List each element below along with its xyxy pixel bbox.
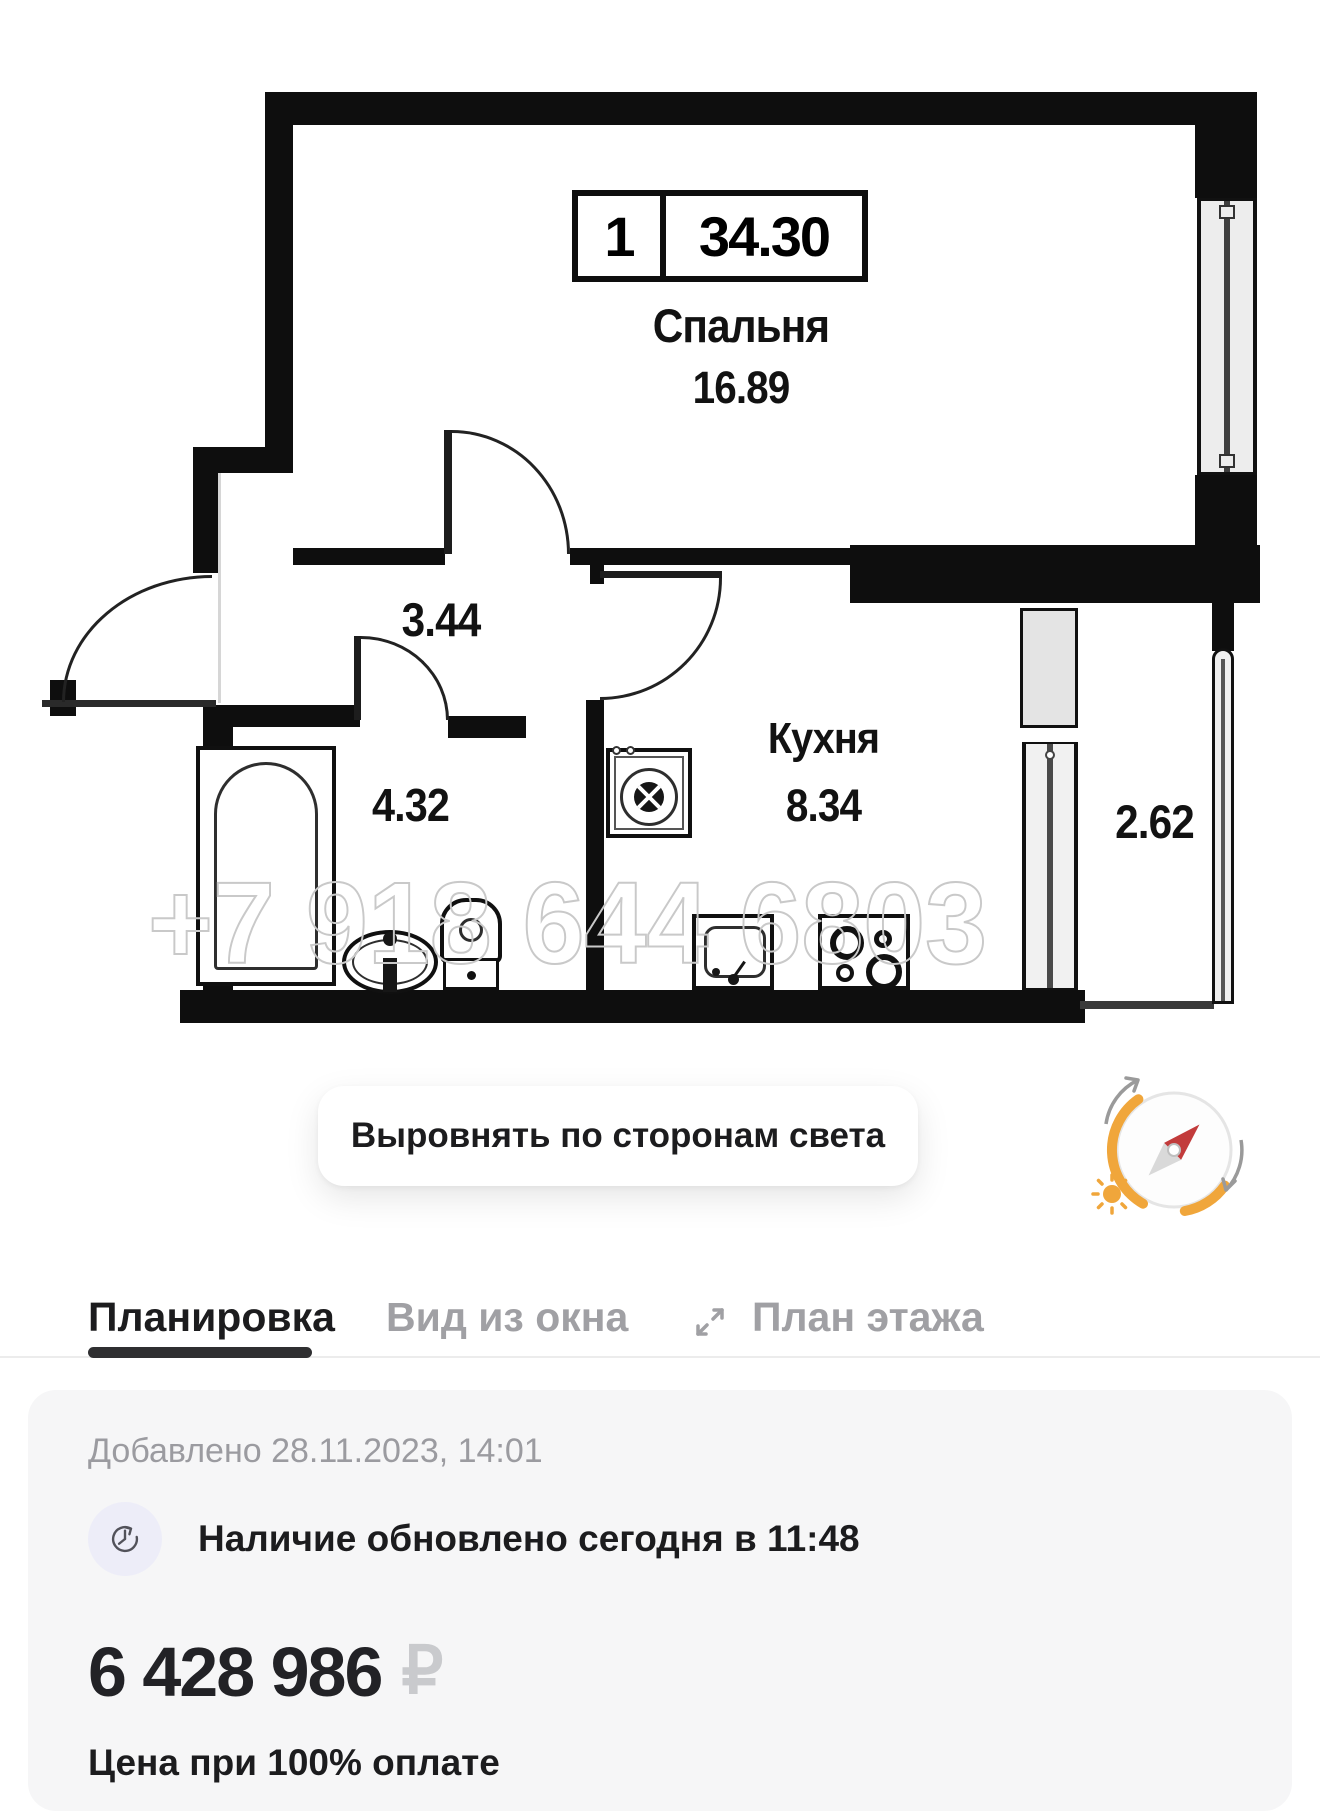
door-arc	[600, 578, 722, 700]
wall	[180, 990, 1085, 1023]
expand-icon[interactable]	[688, 1300, 732, 1344]
wall	[193, 473, 219, 573]
availability-text: Наличие обновлено сегодня в 11:48	[198, 1518, 860, 1560]
wall	[193, 447, 293, 473]
balcony-edge-line	[1080, 1001, 1214, 1009]
wall	[293, 548, 445, 565]
wall	[1212, 603, 1234, 651]
tab-plan-etazha[interactable]: План этажа	[752, 1294, 984, 1341]
wall	[1195, 125, 1257, 198]
room-label-bedroom: Спальня	[606, 298, 876, 353]
price-value: 6 428 986	[88, 1632, 381, 1712]
room-label-kitchen: Кухня	[745, 714, 903, 764]
wall	[1195, 475, 1257, 545]
price-note: Цена при 100% оплате	[88, 1742, 500, 1784]
tab-planirovka[interactable]: Планировка	[88, 1294, 335, 1341]
phone-watermark: +7 918 644 6803	[148, 856, 987, 990]
listing-page: 1 34.30 Спальня 16.89 3.44 Кухня 8.34 4.…	[0, 0, 1320, 1811]
availability-clock-icon	[88, 1502, 162, 1576]
tab-vid-iz-okna[interactable]: Вид из окна	[386, 1294, 628, 1341]
washing-machine-symbol	[606, 748, 692, 838]
door-arc	[62, 575, 212, 702]
sun-icon	[1093, 1175, 1131, 1213]
unit-rooms-count: 1	[578, 196, 666, 276]
availability-row: Наличие обновлено сегодня в 11:48	[88, 1502, 860, 1576]
added-date-text: Добавлено 28.11.2023, 14:01	[88, 1432, 543, 1471]
wall	[570, 548, 850, 565]
room-area-bathroom: 4.32	[336, 778, 485, 832]
window-bedroom	[1197, 198, 1257, 475]
align-cardinal-button[interactable]: Выровнять по сторонам света	[318, 1086, 918, 1186]
room-area-hallway: 3.44	[365, 592, 518, 647]
room-area-bedroom: 16.89	[606, 362, 876, 414]
wall	[850, 545, 1260, 603]
listing-info-card: Добавлено 28.11.2023, 14:01 Наличие обно…	[28, 1390, 1292, 1811]
unit-info-box: 1 34.30	[572, 190, 868, 282]
window-kitchen-balcony	[1022, 742, 1078, 990]
door-bedroom	[444, 430, 452, 554]
price-row: 6 428 986 ₽	[88, 1632, 443, 1712]
balcony-door	[1020, 608, 1078, 728]
wall	[265, 125, 293, 447]
ruble-symbol: ₽	[401, 1632, 443, 1709]
floor-plan-canvas[interactable]: 1 34.30 Спальня 16.89 3.44 Кухня 8.34 4.…	[0, 0, 1320, 1060]
room-area-kitchen: 8.34	[745, 780, 903, 832]
door-kitchen	[600, 571, 722, 578]
door-arc	[361, 636, 449, 720]
compass-icon[interactable]	[1088, 1062, 1260, 1234]
unit-total-area: 34.30	[666, 196, 862, 276]
wall	[448, 716, 526, 738]
niche-line	[218, 473, 221, 703]
door-arc	[452, 430, 570, 554]
door-bathroom	[354, 636, 361, 720]
wall	[265, 92, 1257, 125]
active-tab-indicator	[88, 1347, 312, 1358]
room-area-balcony: 2.62	[1080, 794, 1229, 849]
compass-svg	[1088, 1062, 1260, 1234]
